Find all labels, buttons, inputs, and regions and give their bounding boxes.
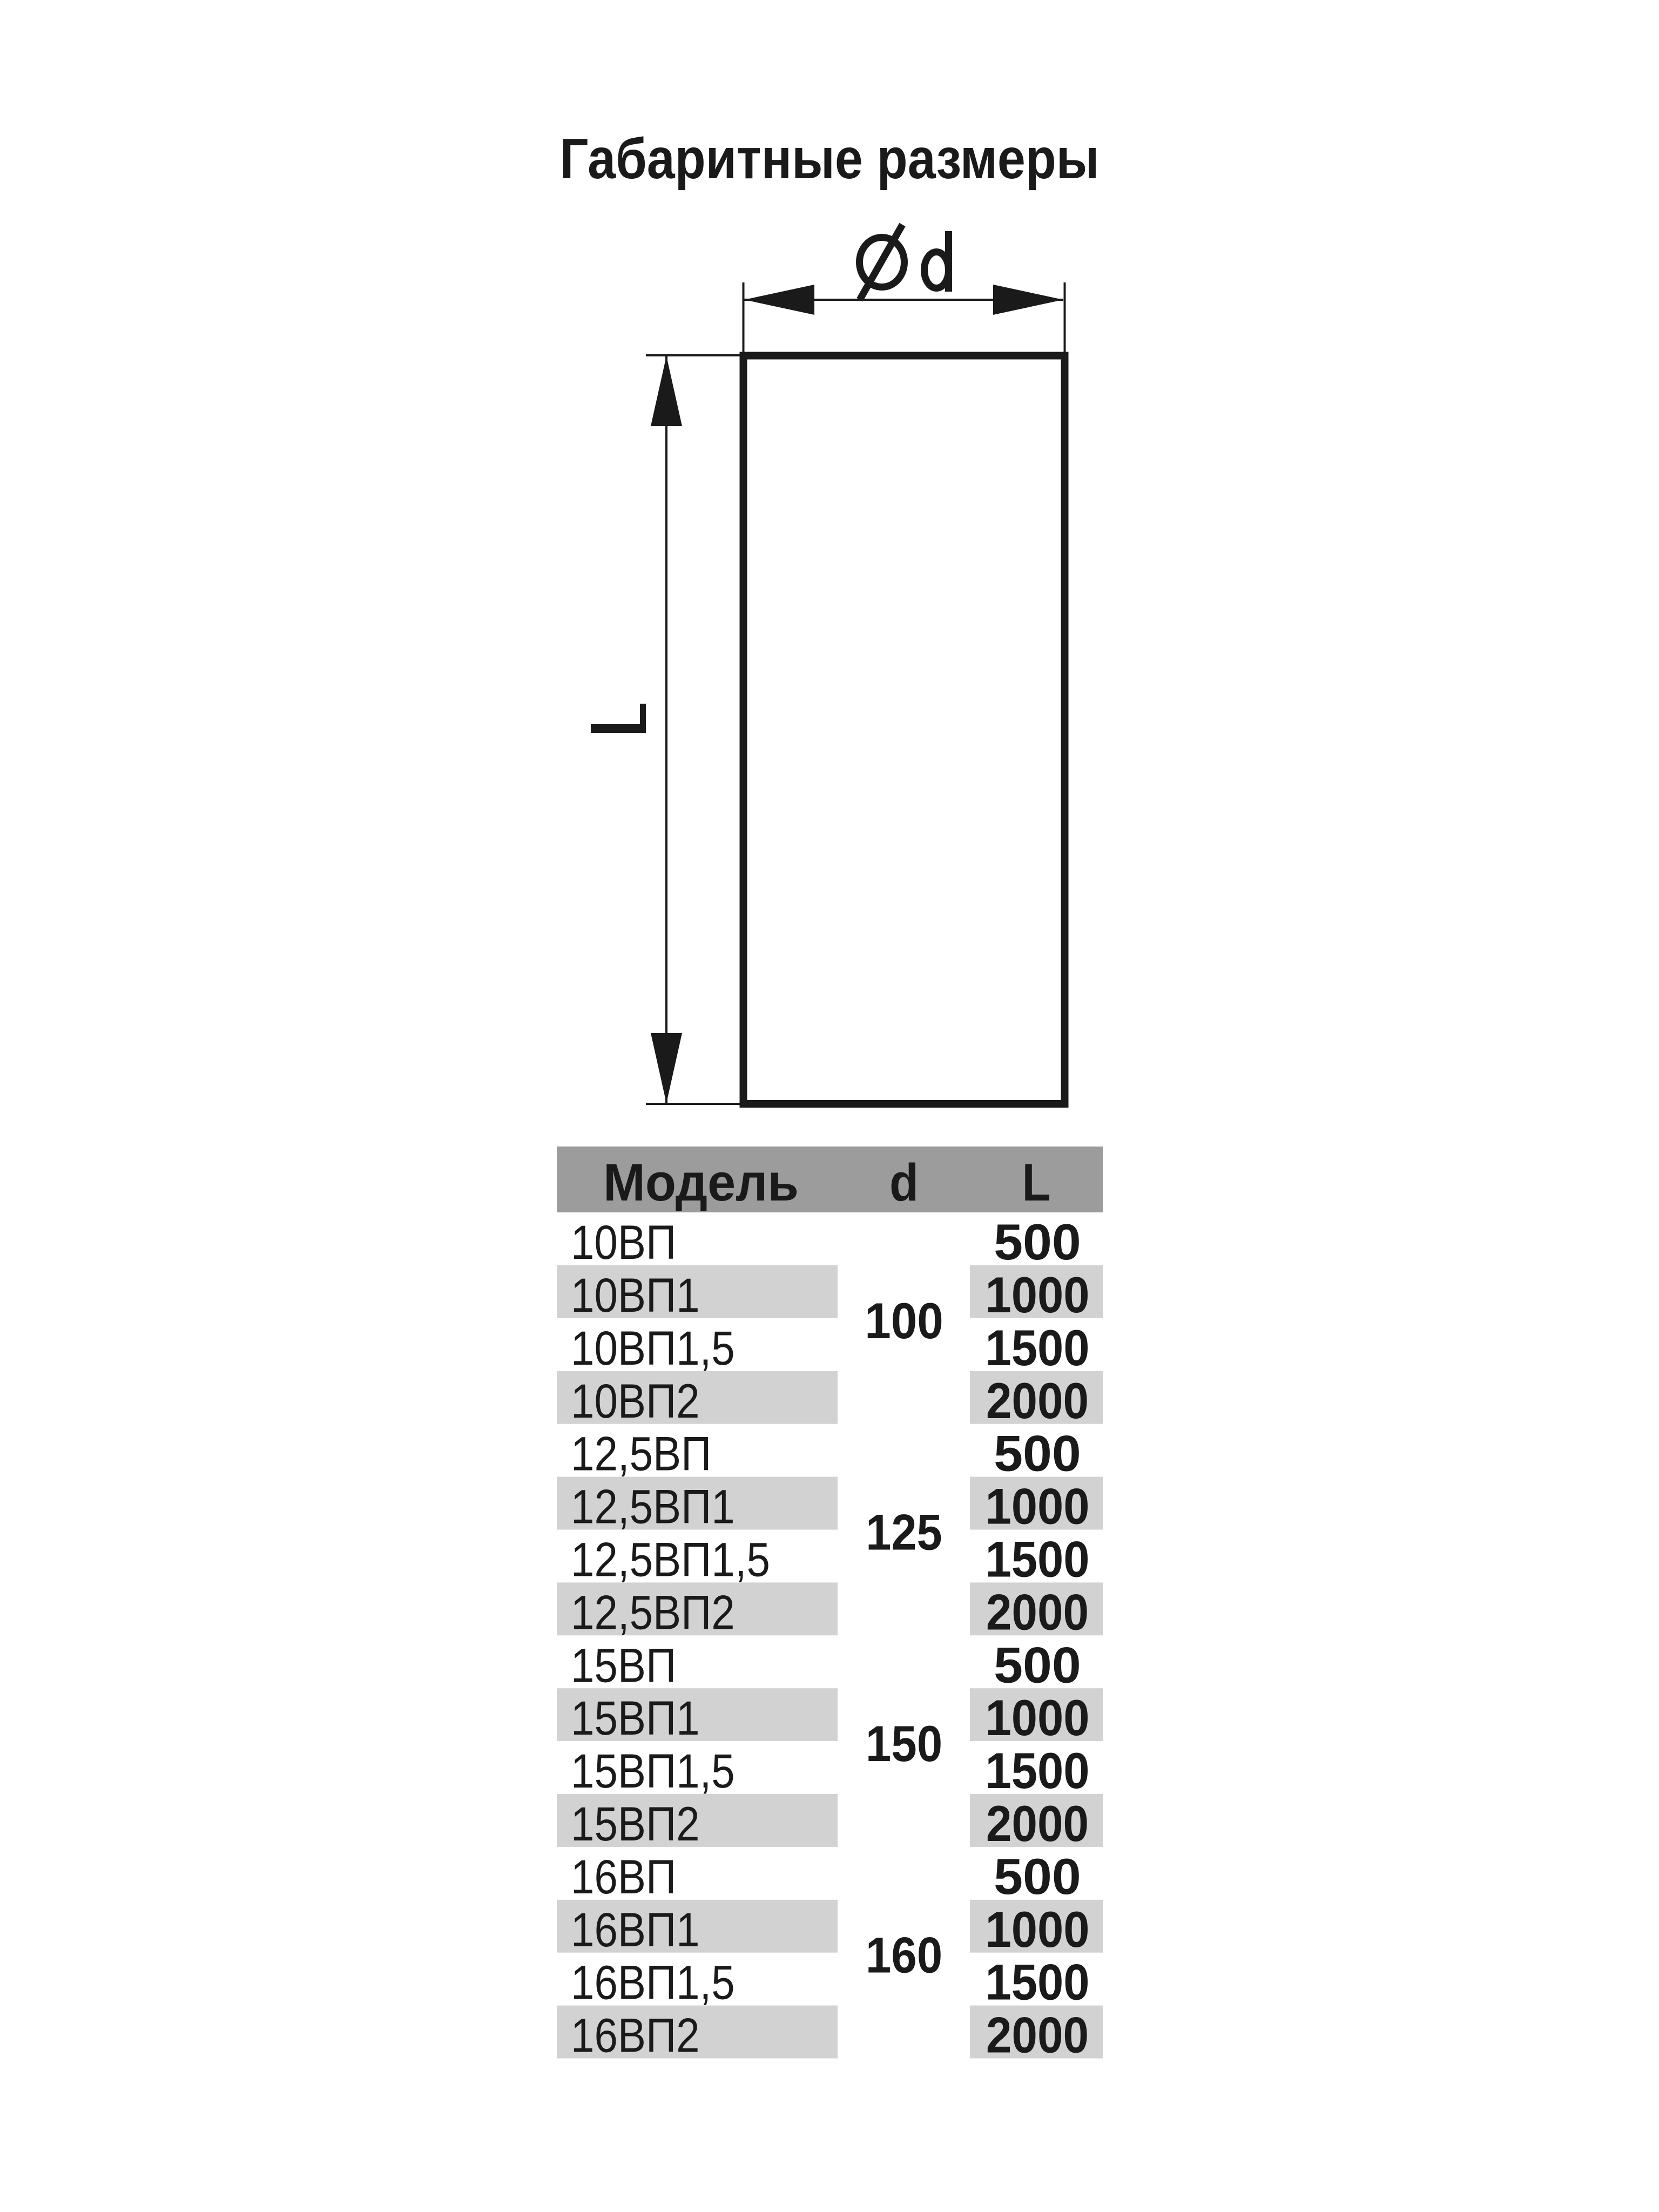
svg-text:12,5ВП1: 12,5ВП1: [571, 1480, 735, 1534]
svg-text:12,5ВП: 12,5ВП: [571, 1427, 711, 1481]
svg-text:12,5ВП1,5: 12,5ВП1,5: [571, 1533, 770, 1587]
svg-text:100: 100: [865, 1292, 943, 1349]
svg-text:10ВП1: 10ВП1: [571, 1268, 700, 1322]
svg-text:1000: 1000: [985, 1901, 1089, 1958]
svg-text:16ВП1: 16ВП1: [571, 1903, 700, 1957]
svg-text:2000: 2000: [986, 1795, 1089, 1852]
svg-text:2000: 2000: [986, 1583, 1089, 1640]
svg-text:500: 500: [994, 1213, 1081, 1270]
svg-text:2000: 2000: [986, 1372, 1089, 1429]
svg-text:500: 500: [994, 1425, 1081, 1482]
svg-text:12,5ВП2: 12,5ВП2: [571, 1585, 735, 1639]
svg-text:1500: 1500: [985, 1531, 1089, 1588]
svg-text:15ВП1,5: 15ВП1,5: [571, 1744, 735, 1798]
svg-text:Модель: Модель: [603, 1153, 799, 1212]
svg-text:15ВП2: 15ВП2: [571, 1797, 700, 1851]
svg-text:2000: 2000: [986, 2007, 1089, 2063]
svg-text:500: 500: [994, 1636, 1081, 1693]
svg-text:L: L: [1022, 1153, 1051, 1212]
svg-text:1000: 1000: [985, 1689, 1089, 1746]
svg-text:15ВП1: 15ВП1: [571, 1691, 700, 1745]
svg-text:Габаритные размеры: Габаритные размеры: [560, 127, 1100, 191]
svg-text:125: 125: [866, 1504, 942, 1561]
svg-text:15ВП: 15ВП: [571, 1638, 676, 1692]
svg-text:16ВП1,5: 16ВП1,5: [571, 1955, 735, 2009]
svg-text:d: d: [889, 1153, 919, 1212]
svg-text:150: 150: [866, 1715, 942, 1772]
svg-text:1500: 1500: [985, 1742, 1089, 1799]
svg-text:16ВП2: 16ВП2: [571, 2008, 700, 2062]
svg-text:1500: 1500: [985, 1319, 1089, 1376]
svg-text:1000: 1000: [985, 1266, 1089, 1323]
svg-text:10ВП2: 10ВП2: [571, 1374, 700, 1428]
svg-text:1500: 1500: [985, 1954, 1089, 2011]
svg-text:16ВП: 16ВП: [571, 1850, 676, 1904]
svg-text:10ВП1,5: 10ВП1,5: [571, 1321, 735, 1375]
svg-text:500: 500: [994, 1848, 1081, 1905]
svg-text:10ВП: 10ВП: [571, 1215, 676, 1269]
svg-text:1000: 1000: [985, 1478, 1089, 1535]
svg-text:160: 160: [866, 1927, 942, 1984]
